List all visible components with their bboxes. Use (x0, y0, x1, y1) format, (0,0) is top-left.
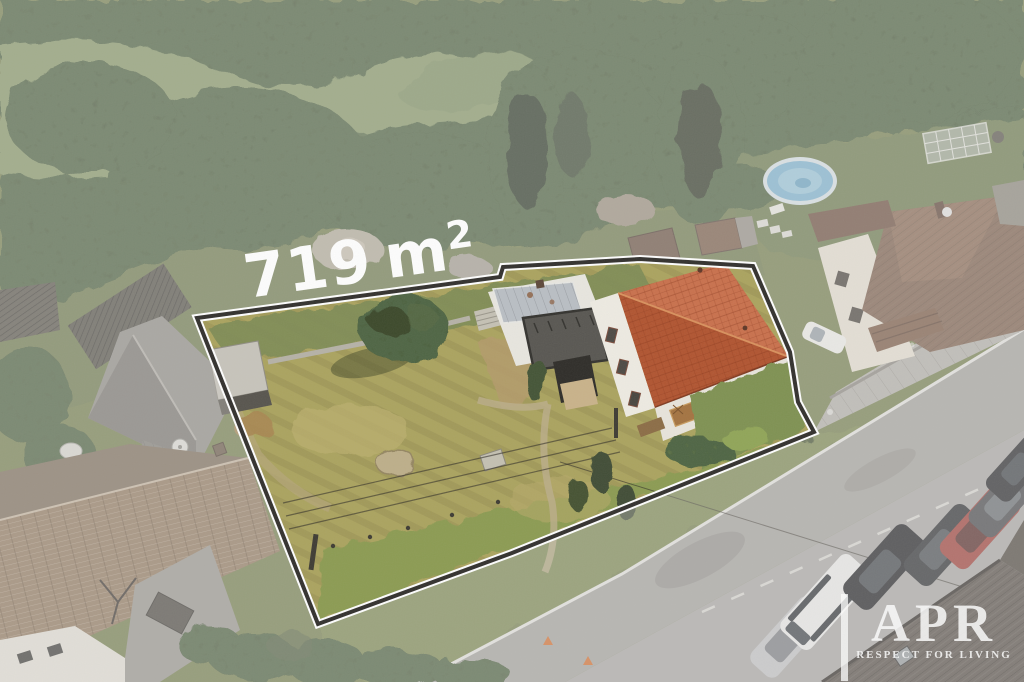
aerial-photo-canvas: 719m2 APR RESPECT FOR LIVING (0, 0, 1024, 682)
aerial-listing-photo: 719m2 APR RESPECT FOR LIVING (0, 0, 1024, 682)
photo-grain-overlay (0, 0, 1024, 682)
